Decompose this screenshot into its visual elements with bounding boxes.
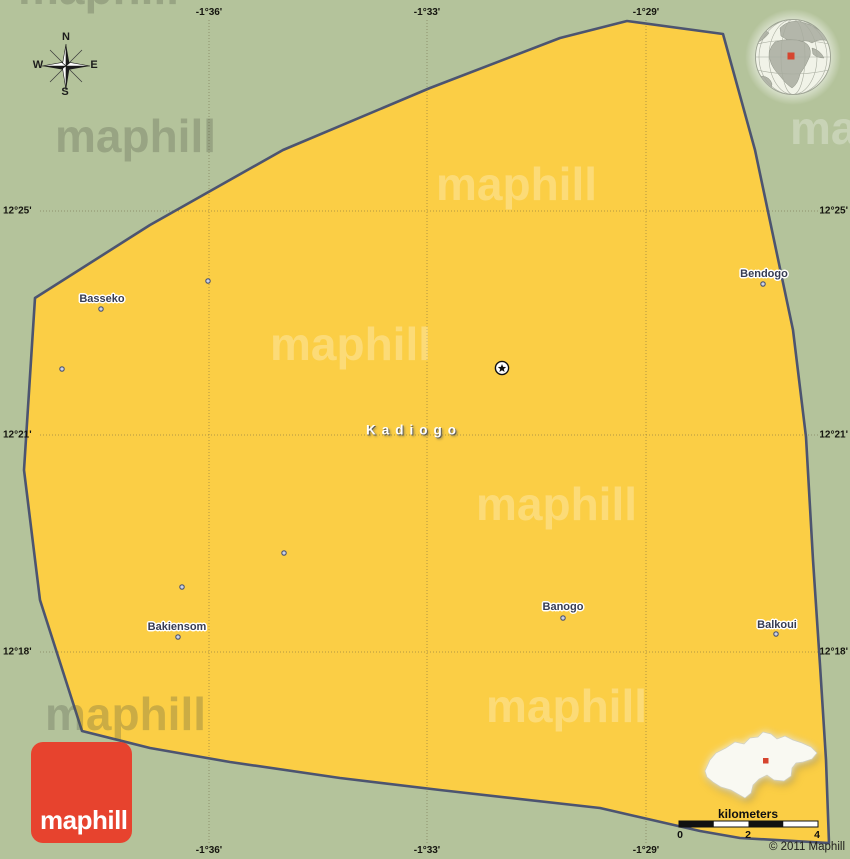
coordinate-label-top: -1°33' — [414, 7, 440, 18]
coordinate-label-right: 12°21' — [819, 430, 848, 441]
coordinate-label-bottom: -1°33' — [414, 845, 440, 856]
maphill-logo[interactable]: maphill — [31, 742, 132, 843]
scale-tick-4: 4 — [814, 829, 820, 841]
labels-layer: N S E W Kadiogo kilometers 0 2 4 © 2011 … — [0, 0, 850, 859]
compass-s-label: S — [61, 86, 68, 98]
town-label: Balkoui — [757, 619, 797, 631]
coordinate-label-left: 12°18' — [3, 647, 32, 658]
compass-n-label: N — [62, 31, 70, 43]
coordinate-label-bottom: -1°36' — [196, 845, 222, 856]
scale-tick-2: 2 — [745, 829, 751, 841]
map-canvas: maphillmaphillmaphillmaphillmaphillmaphi… — [0, 0, 850, 859]
coordinate-label-bottom: -1°29' — [633, 845, 659, 856]
maphill-logo-text: maphill — [40, 805, 128, 836]
scale-bar-title: kilometers — [718, 807, 778, 821]
copyright-text: © 2011 Maphill — [769, 841, 845, 853]
town-label: Bendogo — [740, 268, 788, 280]
coordinate-label-right: 12°25' — [819, 206, 848, 217]
coordinate-label-top: -1°36' — [196, 7, 222, 18]
coordinate-label-left: 12°21' — [3, 430, 32, 441]
town-label: Bakiensom — [148, 621, 207, 633]
coordinate-label-top: -1°29' — [633, 7, 659, 18]
town-label: Basseko — [79, 293, 124, 305]
coordinate-label-left: 12°25' — [3, 206, 32, 217]
town-label: Banogo — [543, 601, 584, 613]
compass-e-label: E — [90, 59, 97, 71]
region-name-label: Kadiogo — [366, 423, 462, 438]
coordinate-label-right: 12°18' — [819, 647, 848, 658]
scale-tick-0: 0 — [677, 829, 683, 841]
compass-w-label: W — [33, 59, 43, 71]
